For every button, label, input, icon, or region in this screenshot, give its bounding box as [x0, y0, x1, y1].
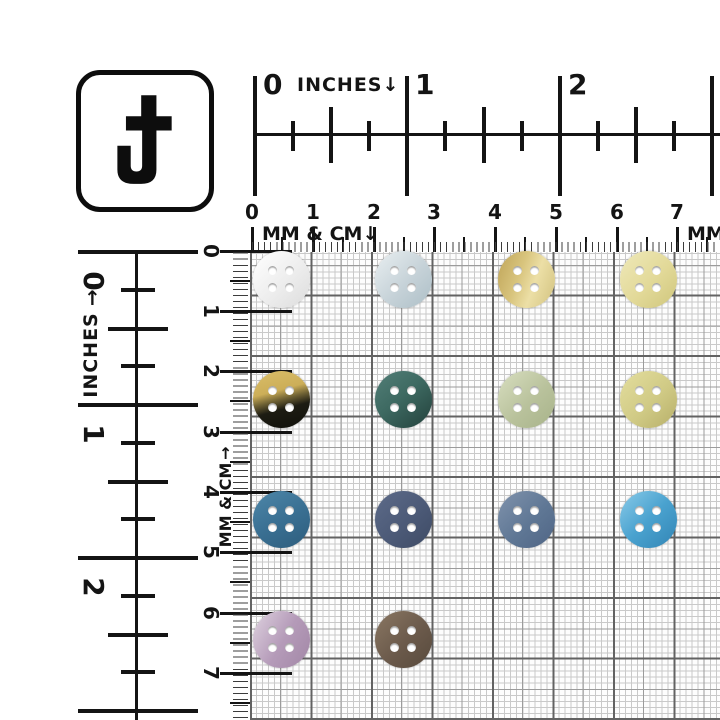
button-hole [268, 386, 278, 396]
button-hole [407, 386, 417, 396]
inch-tick [253, 76, 257, 196]
left-inch-number: 2 [78, 572, 108, 602]
left-inch-number: 1 [78, 419, 108, 449]
left-cm-number: 5 [200, 540, 222, 564]
quarter-inch-tick [121, 517, 155, 521]
button-hole [390, 626, 400, 636]
button-hole [635, 523, 645, 533]
button-hole [390, 643, 400, 653]
button-hole [407, 643, 417, 653]
top-inch-number: 1 [415, 72, 445, 98]
button-hole [513, 283, 523, 293]
button-hole [390, 266, 400, 276]
button-hole [285, 386, 295, 396]
top-inch-number: 2 [568, 72, 598, 98]
top-cm-number: 6 [605, 202, 629, 222]
left-cm-number: 3 [200, 420, 222, 444]
button-hole [390, 403, 400, 413]
top-inches-label: INCHES↓ [297, 76, 399, 95]
cm-tick [220, 431, 292, 434]
button-hole [530, 283, 540, 293]
button-hole [652, 403, 662, 413]
button-hole [635, 403, 645, 413]
cm-tick [220, 310, 292, 313]
top-cm-number: 1 [301, 202, 325, 222]
button-hole [513, 386, 523, 396]
graph-paper-grid [250, 252, 720, 720]
button-lavender-mauve [253, 611, 310, 668]
button-hole [407, 523, 417, 533]
button-hole [285, 643, 295, 653]
top-inch-ruler-baseline [253, 133, 720, 136]
button-hole [390, 523, 400, 533]
button-gold-black [253, 371, 310, 428]
button-azure-blue [620, 491, 677, 548]
mm-tick-band [233, 251, 248, 718]
half-inch-tick [482, 107, 486, 163]
button-hole [268, 643, 278, 653]
button-hole [652, 523, 662, 533]
top-inch-number: 0 [263, 72, 293, 98]
quarter-inch-tick [443, 121, 447, 151]
button-taupe-brown [375, 611, 432, 668]
button-hole [390, 386, 400, 396]
inch-tick [710, 76, 714, 196]
button-hole [530, 266, 540, 276]
quarter-inch-tick [596, 121, 600, 151]
half-inch-tick [108, 480, 168, 484]
button-hole [285, 626, 295, 636]
button-hole [635, 283, 645, 293]
inch-tick [78, 709, 198, 713]
half-inch-tick [108, 327, 168, 331]
button-hole [268, 626, 278, 636]
half-inch-tick [108, 633, 168, 637]
button-hole [268, 403, 278, 413]
button-hole [530, 386, 540, 396]
button-hole [268, 266, 278, 276]
button-hole [652, 506, 662, 516]
button-hole [268, 523, 278, 533]
button-hole [652, 283, 662, 293]
button-dusty-blue [498, 491, 555, 548]
left-cm-number: 2 [200, 359, 222, 383]
quarter-inch-tick [672, 121, 676, 151]
left-inches-label: INCHES [82, 305, 104, 405]
button-hole [285, 506, 295, 516]
button-hole [390, 283, 400, 293]
button-hole [530, 523, 540, 533]
button-white-pearl [253, 251, 310, 308]
button-hole [407, 626, 417, 636]
button-pale-cream [620, 251, 677, 308]
button-hole [407, 266, 417, 276]
top-cm-number: 7 [665, 202, 689, 222]
left-inch-number: 0 [78, 266, 108, 296]
top-cm-number: 4 [483, 202, 507, 222]
top-cm-number: 2 [362, 202, 386, 222]
button-hole [652, 266, 662, 276]
quarter-inch-tick [121, 288, 155, 292]
button-hole [530, 403, 540, 413]
button-hole [285, 266, 295, 276]
button-pale-blue-gray [375, 251, 432, 308]
button-hole [268, 506, 278, 516]
button-hole [635, 266, 645, 276]
left-cm-number: 6 [200, 601, 222, 625]
button-hole [530, 506, 540, 516]
quarter-inch-tick [520, 121, 524, 151]
top-cm-number: 5 [544, 202, 568, 222]
left-cm-number: 1 [200, 299, 222, 323]
inch-tick [78, 403, 198, 407]
half-inch-tick [329, 107, 333, 163]
left-mm-cm-up-arrow-icon: ↑ [219, 446, 232, 462]
quarter-inch-tick [367, 121, 371, 151]
cm-tick [220, 672, 292, 675]
letter-j-logo-icon [105, 89, 185, 193]
button-hole [513, 403, 523, 413]
button-hole [285, 523, 295, 533]
quarter-inch-tick [291, 121, 295, 151]
button-hole [407, 403, 417, 413]
button-hole [635, 386, 645, 396]
left-inch-ruler-baseline [135, 252, 138, 720]
button-hole [268, 283, 278, 293]
button-sage-green [498, 371, 555, 428]
quarter-inch-tick [121, 441, 155, 445]
button-hole [513, 523, 523, 533]
top-cm-number: 3 [422, 202, 446, 222]
button-dark-teal [375, 371, 432, 428]
button-steel-blue [253, 491, 310, 548]
top-cm-number: 0 [240, 202, 264, 222]
left-cm-number: 4 [200, 480, 222, 504]
button-hole [407, 506, 417, 516]
inch-tick [558, 76, 562, 196]
button-hole [635, 506, 645, 516]
quarter-inch-tick [121, 670, 155, 674]
inch-tick [78, 556, 198, 560]
inch-tick [405, 76, 409, 196]
left-cm-number: 0 [200, 239, 222, 263]
half-inch-tick [634, 107, 638, 163]
button-hole [390, 506, 400, 516]
quarter-inch-tick [121, 594, 155, 598]
brand-logo [76, 70, 214, 212]
button-hole [513, 506, 523, 516]
button-hole [652, 386, 662, 396]
button-hole [513, 266, 523, 276]
button-hole [285, 283, 295, 293]
cm-tick [220, 551, 292, 554]
button-hole [285, 403, 295, 413]
button-antique-gold [498, 251, 555, 308]
button-hole [407, 283, 417, 293]
quarter-inch-tick [121, 364, 155, 368]
left-cm-number: 7 [200, 661, 222, 685]
button-slate-navy [375, 491, 432, 548]
inch-tick [78, 250, 198, 254]
button-khaki-yellow [620, 371, 677, 428]
measurement-board: INCHES↓ MM & CM↓ MM INCHES ↑ MM & CM ↑ 0… [0, 0, 720, 720]
